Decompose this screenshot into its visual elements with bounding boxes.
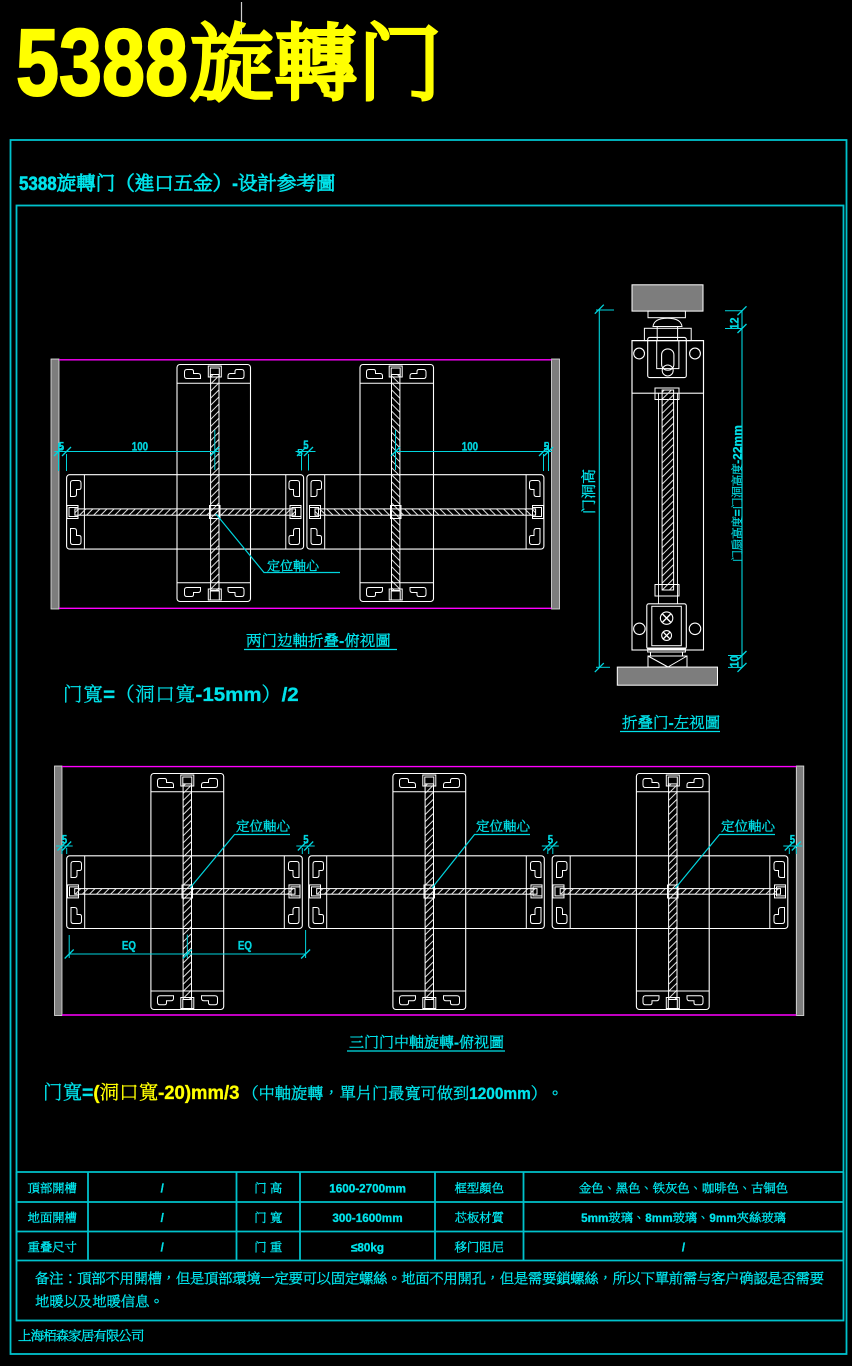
svg-text:5388: 5388 bbox=[19, 173, 57, 195]
svg-text:5: 5 bbox=[62, 835, 68, 847]
svg-text:=: = bbox=[731, 509, 745, 516]
svg-text:5: 5 bbox=[548, 835, 554, 847]
svg-text:5mm: 5mm bbox=[581, 1211, 608, 1225]
svg-text:-22mm: -22mm bbox=[731, 425, 745, 464]
svg-text:1200mm: 1200mm bbox=[469, 1085, 531, 1103]
svg-text:-15mm: -15mm bbox=[196, 684, 262, 706]
svg-text:(: ( bbox=[93, 1082, 100, 1104]
svg-text:/: / bbox=[682, 1241, 686, 1255]
svg-text:5388: 5388 bbox=[16, 10, 188, 116]
svg-text:9mm: 9mm bbox=[709, 1211, 736, 1225]
svg-text:8mm: 8mm bbox=[645, 1211, 672, 1225]
svg-text:/2: /2 bbox=[282, 684, 299, 706]
svg-text:-: - bbox=[339, 633, 344, 650]
svg-text:5: 5 bbox=[303, 440, 309, 452]
svg-text:5: 5 bbox=[790, 835, 796, 847]
svg-text:5: 5 bbox=[297, 447, 303, 459]
svg-text:/: / bbox=[161, 1241, 165, 1255]
svg-text:/: / bbox=[161, 1182, 165, 1196]
svg-text:10: 10 bbox=[728, 655, 742, 667]
svg-text:EQ: EQ bbox=[122, 941, 136, 953]
svg-text:EQ: EQ bbox=[238, 941, 252, 953]
svg-text:-: - bbox=[232, 173, 238, 195]
svg-text:100: 100 bbox=[462, 442, 478, 454]
svg-text:5: 5 bbox=[303, 835, 309, 847]
svg-text:1600-2700mm: 1600-2700mm bbox=[329, 1182, 406, 1196]
svg-text:5: 5 bbox=[59, 442, 65, 454]
svg-text:=: = bbox=[103, 684, 115, 706]
svg-text:300-1600mm: 300-1600mm bbox=[332, 1211, 402, 1225]
svg-text:12: 12 bbox=[728, 317, 742, 329]
svg-text:/: / bbox=[161, 1211, 165, 1225]
svg-text:-: - bbox=[454, 1035, 459, 1052]
svg-text:100: 100 bbox=[132, 442, 148, 454]
svg-text:5: 5 bbox=[544, 442, 550, 454]
svg-text:≤80kg: ≤80kg bbox=[351, 1241, 384, 1255]
svg-text:=: = bbox=[82, 1082, 93, 1104]
svg-text:-20)mm/3: -20)mm/3 bbox=[158, 1082, 239, 1104]
svg-text:-: - bbox=[669, 715, 674, 732]
